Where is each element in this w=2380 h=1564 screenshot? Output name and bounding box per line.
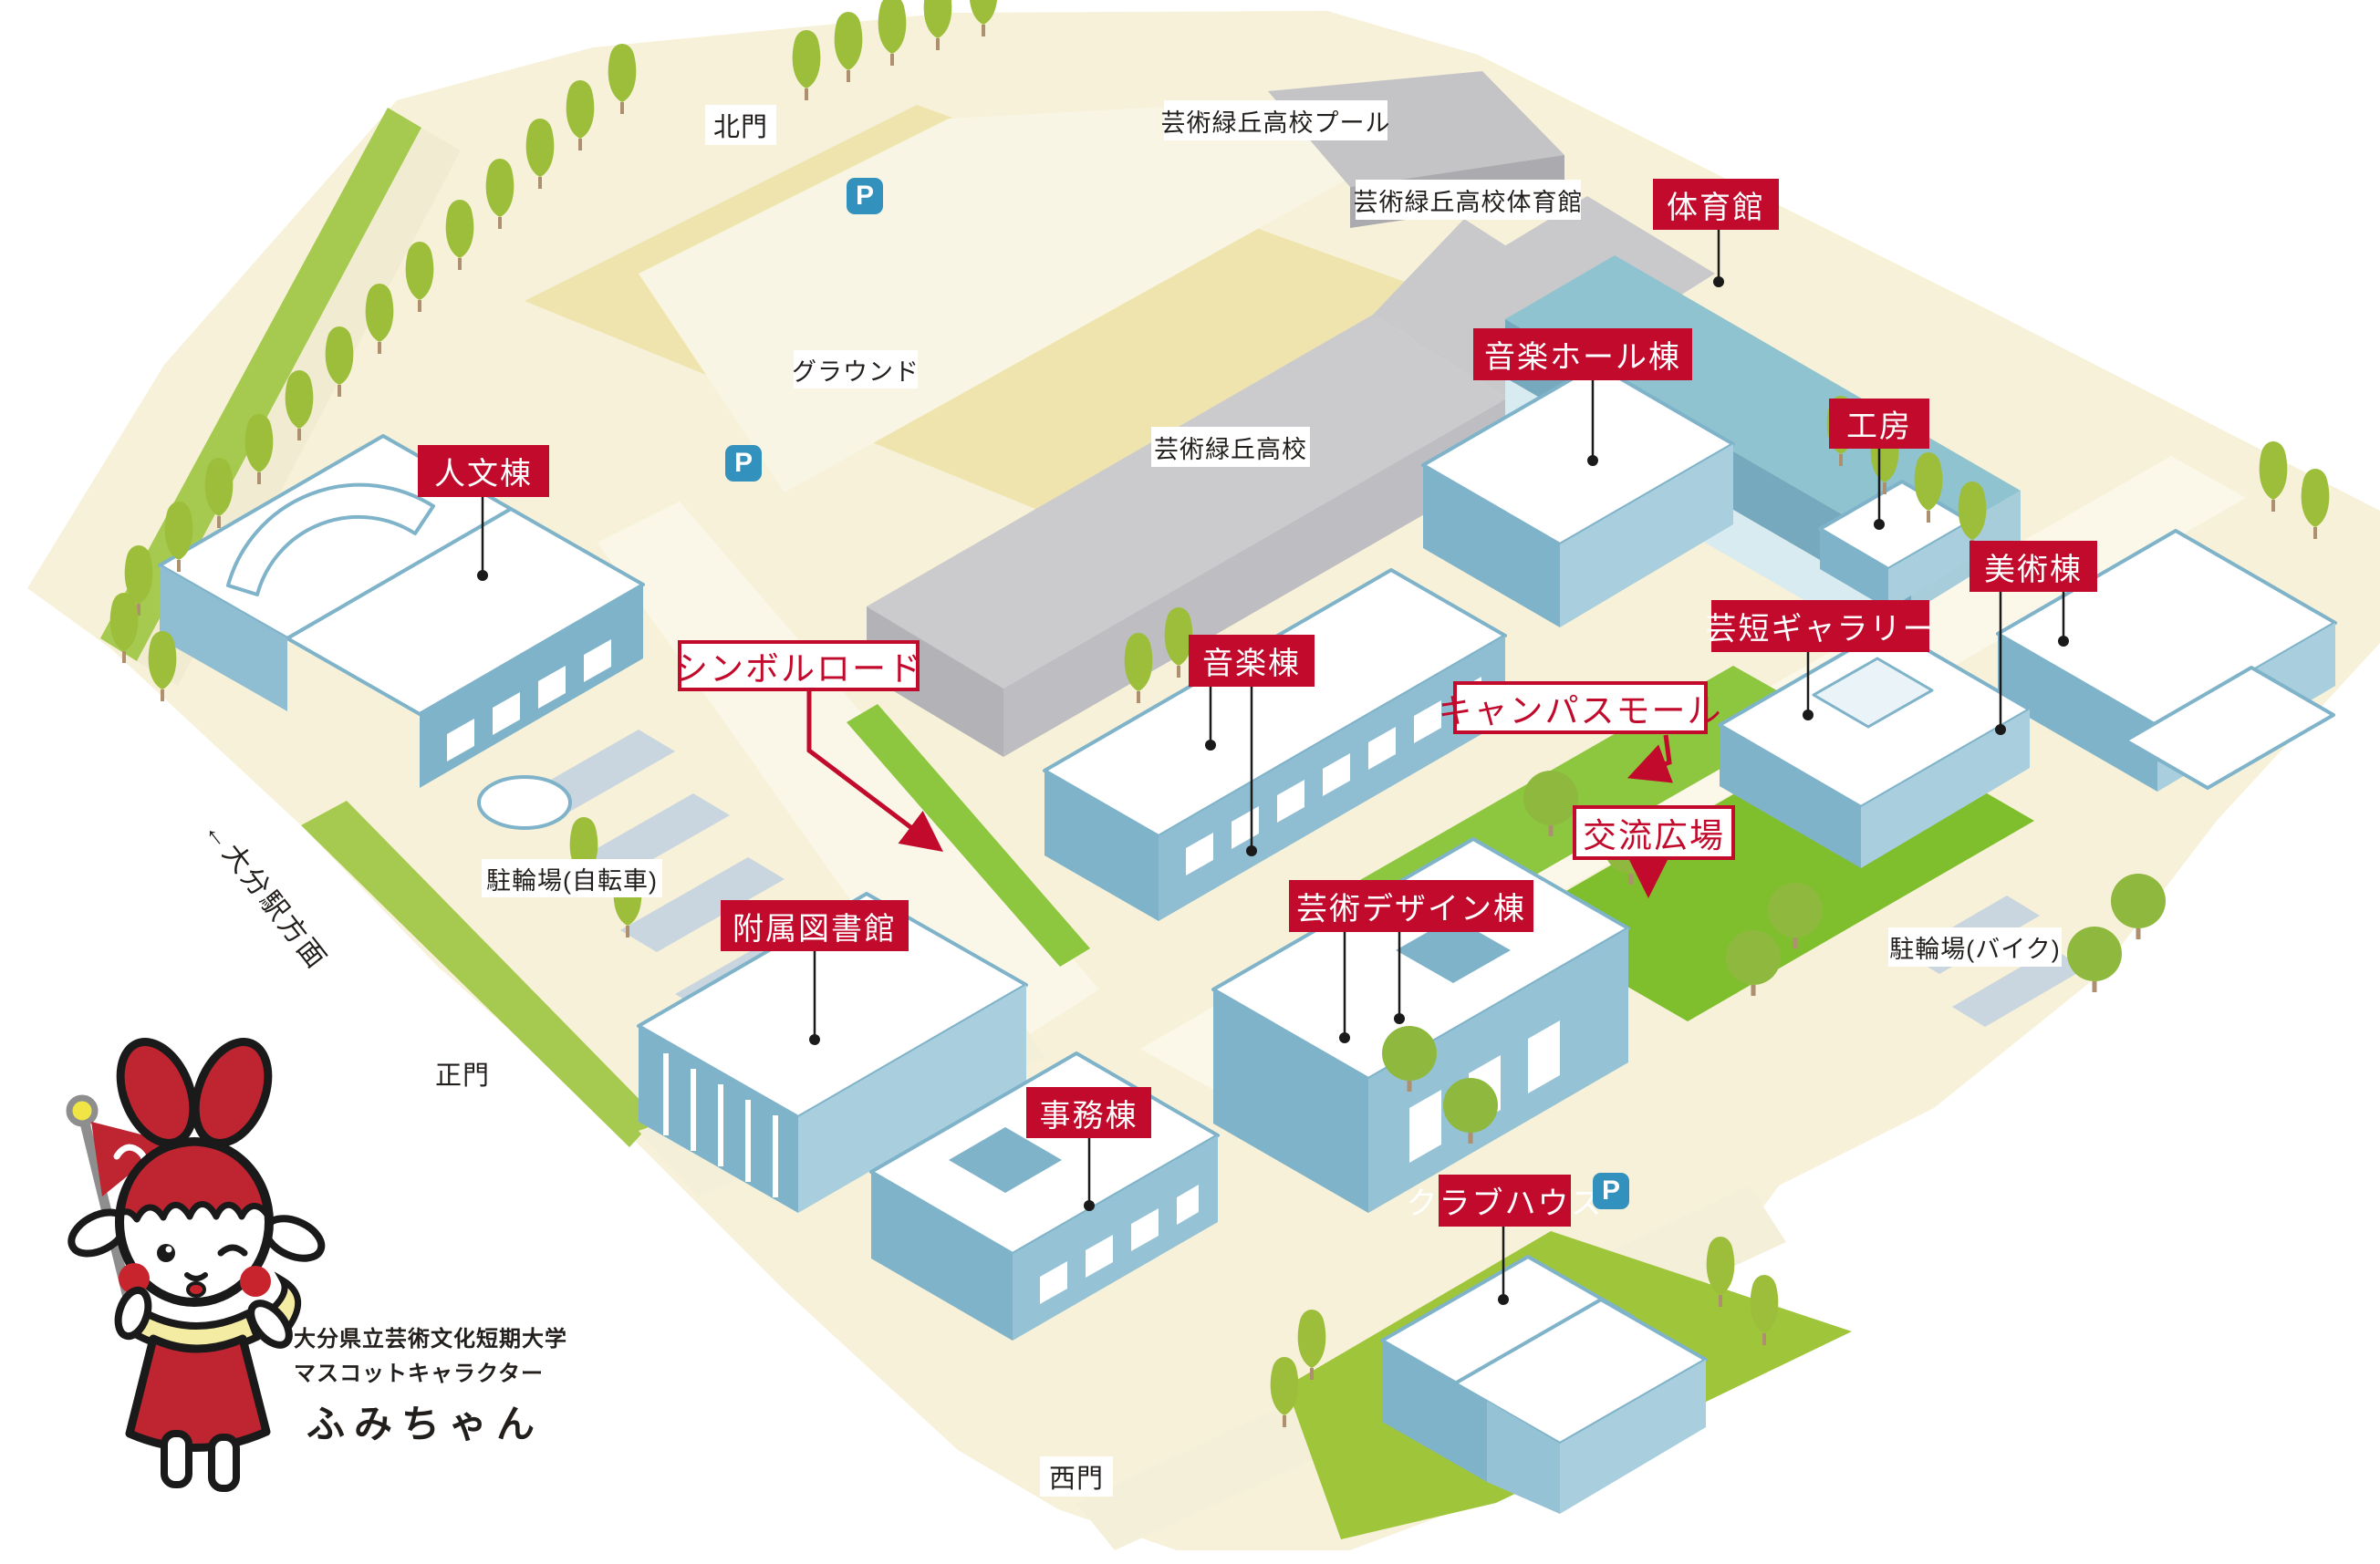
badge-clubhouse: クラブハウス	[1439, 1175, 1571, 1227]
badge-art-design-building: 芸術デザイン棟	[1289, 880, 1533, 932]
parking-icon-north: P	[847, 178, 883, 214]
badge-art-building: 美術棟	[1969, 541, 2097, 592]
parking-icon-ground: P	[725, 445, 762, 482]
label-hs-pool: 芸術緑丘高校プール	[1164, 100, 1387, 140]
label-bicycle-parking: 駐輪場(自転車)	[482, 859, 662, 897]
badge-symbol-road: シンボルロード	[678, 640, 920, 691]
badge-workshop: 工房	[1829, 399, 1929, 449]
mascot-name: ふみちゃん	[307, 1393, 544, 1449]
campus-map: 体育館 音楽ホール棟 工房 人文棟 美術棟 芸短ギャラリー 音楽棟 附属図書館 …	[0, 0, 2380, 1564]
label-west-gate: 西門	[1040, 1456, 1113, 1497]
label-bike-parking: 駐輪場(バイク)	[1888, 927, 2062, 967]
badge-administration: 事務棟	[1026, 1087, 1151, 1138]
label-high-school: 芸術緑丘高校	[1151, 427, 1310, 467]
label-hs-gym: 芸術緑丘高校体育館	[1356, 180, 1581, 220]
badge-humanities: 人文棟	[418, 445, 549, 497]
parking-icon-clubhouse: P	[1593, 1173, 1629, 1209]
label-main-gate: 正門	[426, 1053, 499, 1093]
mascot-role: マスコットキャラクター	[294, 1355, 544, 1387]
badge-music-hall: 音楽ホール棟	[1473, 328, 1692, 380]
badge-exchange-plaza: 交流広場	[1573, 805, 1735, 860]
badge-music-building: 音楽棟	[1189, 635, 1315, 687]
label-north-gate: 北門	[705, 105, 776, 145]
badge-campus-mall: キャンパスモール	[1453, 681, 1708, 734]
badge-geitan-gallery: 芸短ギャラリー	[1711, 600, 1929, 652]
badge-gymnasium: 体育館	[1653, 179, 1779, 230]
badge-library: 附属図書館	[721, 900, 909, 951]
mascot-organization: 大分県立芸術文化短期大学	[294, 1321, 567, 1352]
label-ground: グラウンド	[794, 350, 918, 388]
mascot-fumichan	[65, 1031, 327, 1488]
